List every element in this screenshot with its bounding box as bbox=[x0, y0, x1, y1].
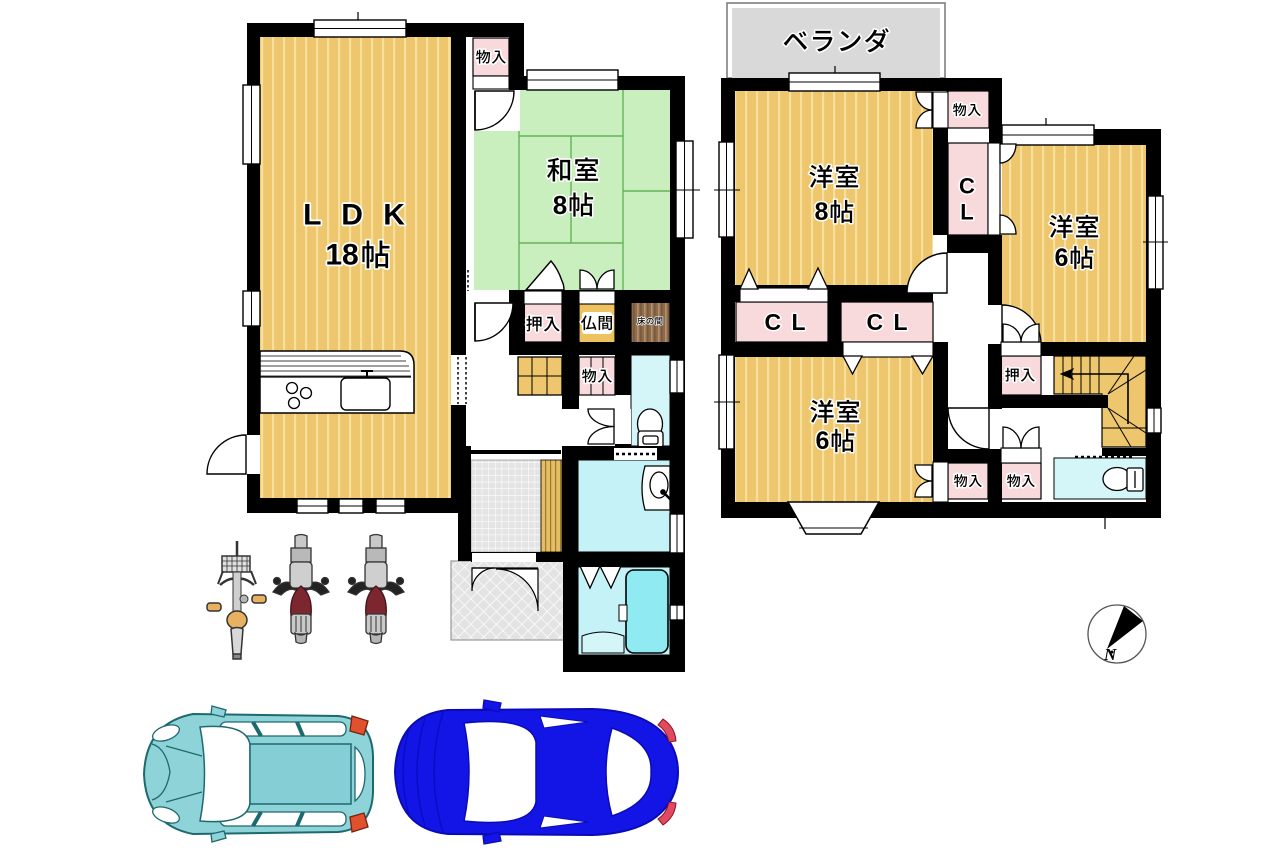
svg-text:C L: C L bbox=[764, 309, 807, 335]
svg-text:18: 18 bbox=[325, 239, 358, 272]
svg-text:6: 6 bbox=[1055, 244, 1069, 272]
svg-text:C L: C L bbox=[866, 309, 909, 335]
svg-text:C: C bbox=[959, 174, 975, 199]
svg-text:L D K: L D K bbox=[303, 199, 411, 232]
svg-text:L: L bbox=[960, 200, 973, 225]
svg-text:8: 8 bbox=[553, 190, 567, 220]
svg-text:N: N bbox=[1103, 645, 1117, 664]
svg-text:6: 6 bbox=[816, 427, 830, 455]
svg-text:8: 8 bbox=[815, 198, 829, 226]
